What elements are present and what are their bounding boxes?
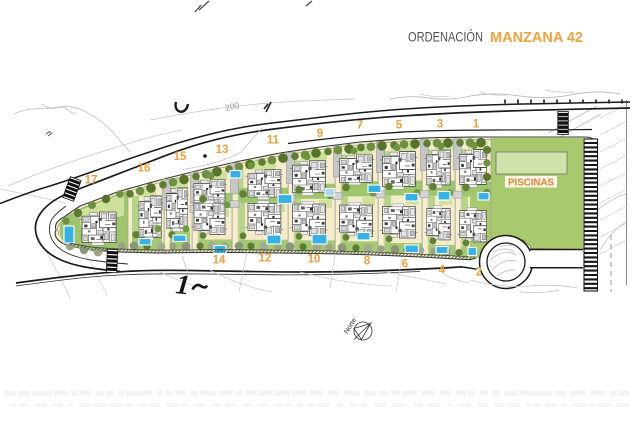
svg-text:13: 13 bbox=[216, 144, 229, 156]
svg-text:16: 16 bbox=[138, 163, 151, 175]
svg-text:10: 10 bbox=[308, 254, 321, 266]
svg-text:17: 17 bbox=[85, 175, 98, 187]
svg-text:1: 1 bbox=[473, 119, 480, 131]
svg-text:11: 11 bbox=[267, 135, 280, 147]
svg-text:12: 12 bbox=[259, 253, 272, 265]
svg-text:ORDENACIÓN: ORDENACIÓN bbox=[408, 30, 483, 45]
svg-text:14: 14 bbox=[213, 255, 226, 267]
svg-text:4: 4 bbox=[439, 265, 446, 277]
svg-text:3: 3 bbox=[437, 119, 443, 131]
svg-text:7: 7 bbox=[357, 120, 363, 132]
svg-text:15: 15 bbox=[174, 151, 187, 163]
svg-text:6: 6 bbox=[402, 259, 408, 271]
svg-text:PISCINAS: PISCINAS bbox=[508, 178, 554, 189]
svg-text:MANZANA 42: MANZANA 42 bbox=[490, 29, 583, 46]
svg-text:2: 2 bbox=[476, 267, 482, 279]
svg-text:5: 5 bbox=[396, 120, 403, 132]
svg-text:8: 8 bbox=[364, 256, 371, 268]
svg-text:9: 9 bbox=[317, 128, 323, 140]
